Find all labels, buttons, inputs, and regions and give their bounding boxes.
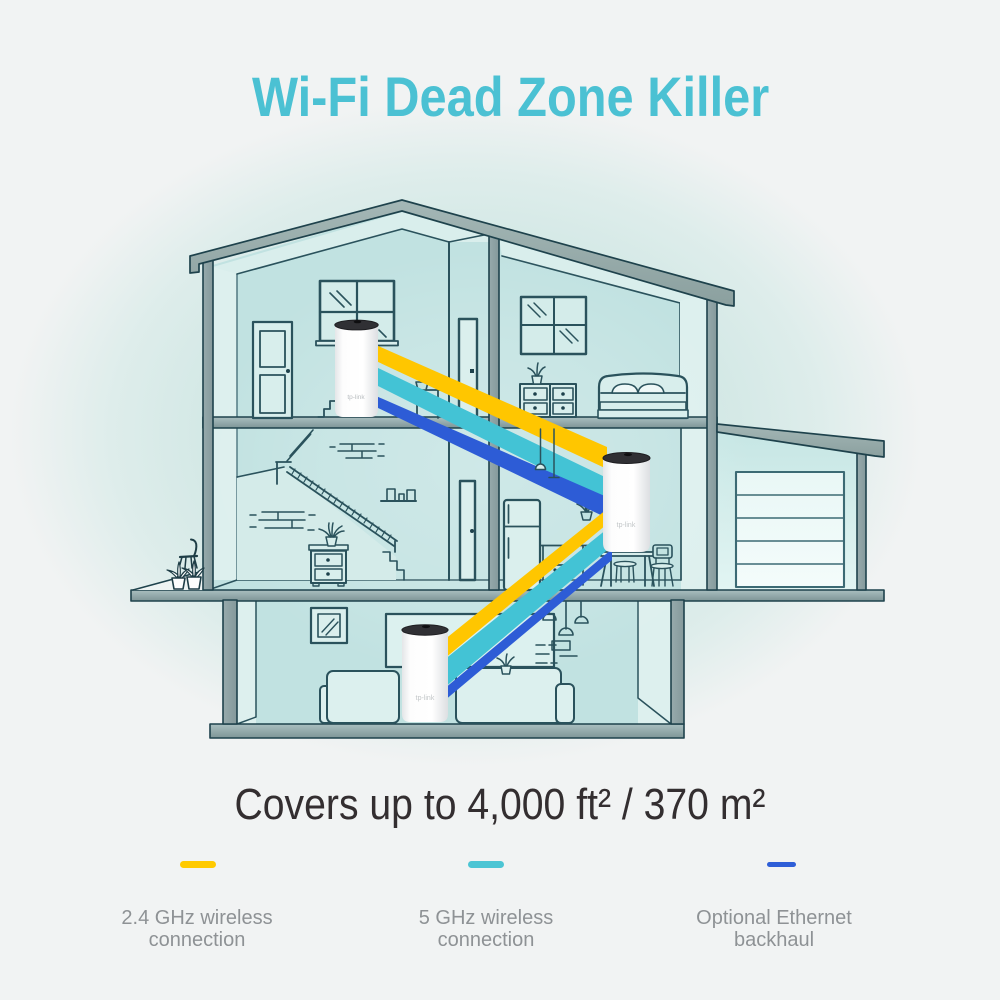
svg-text:tp-link: tp-link bbox=[416, 695, 435, 702]
svg-text:tp-link: tp-link bbox=[617, 522, 636, 529]
svg-text:tp-link: tp-link bbox=[347, 394, 365, 401]
